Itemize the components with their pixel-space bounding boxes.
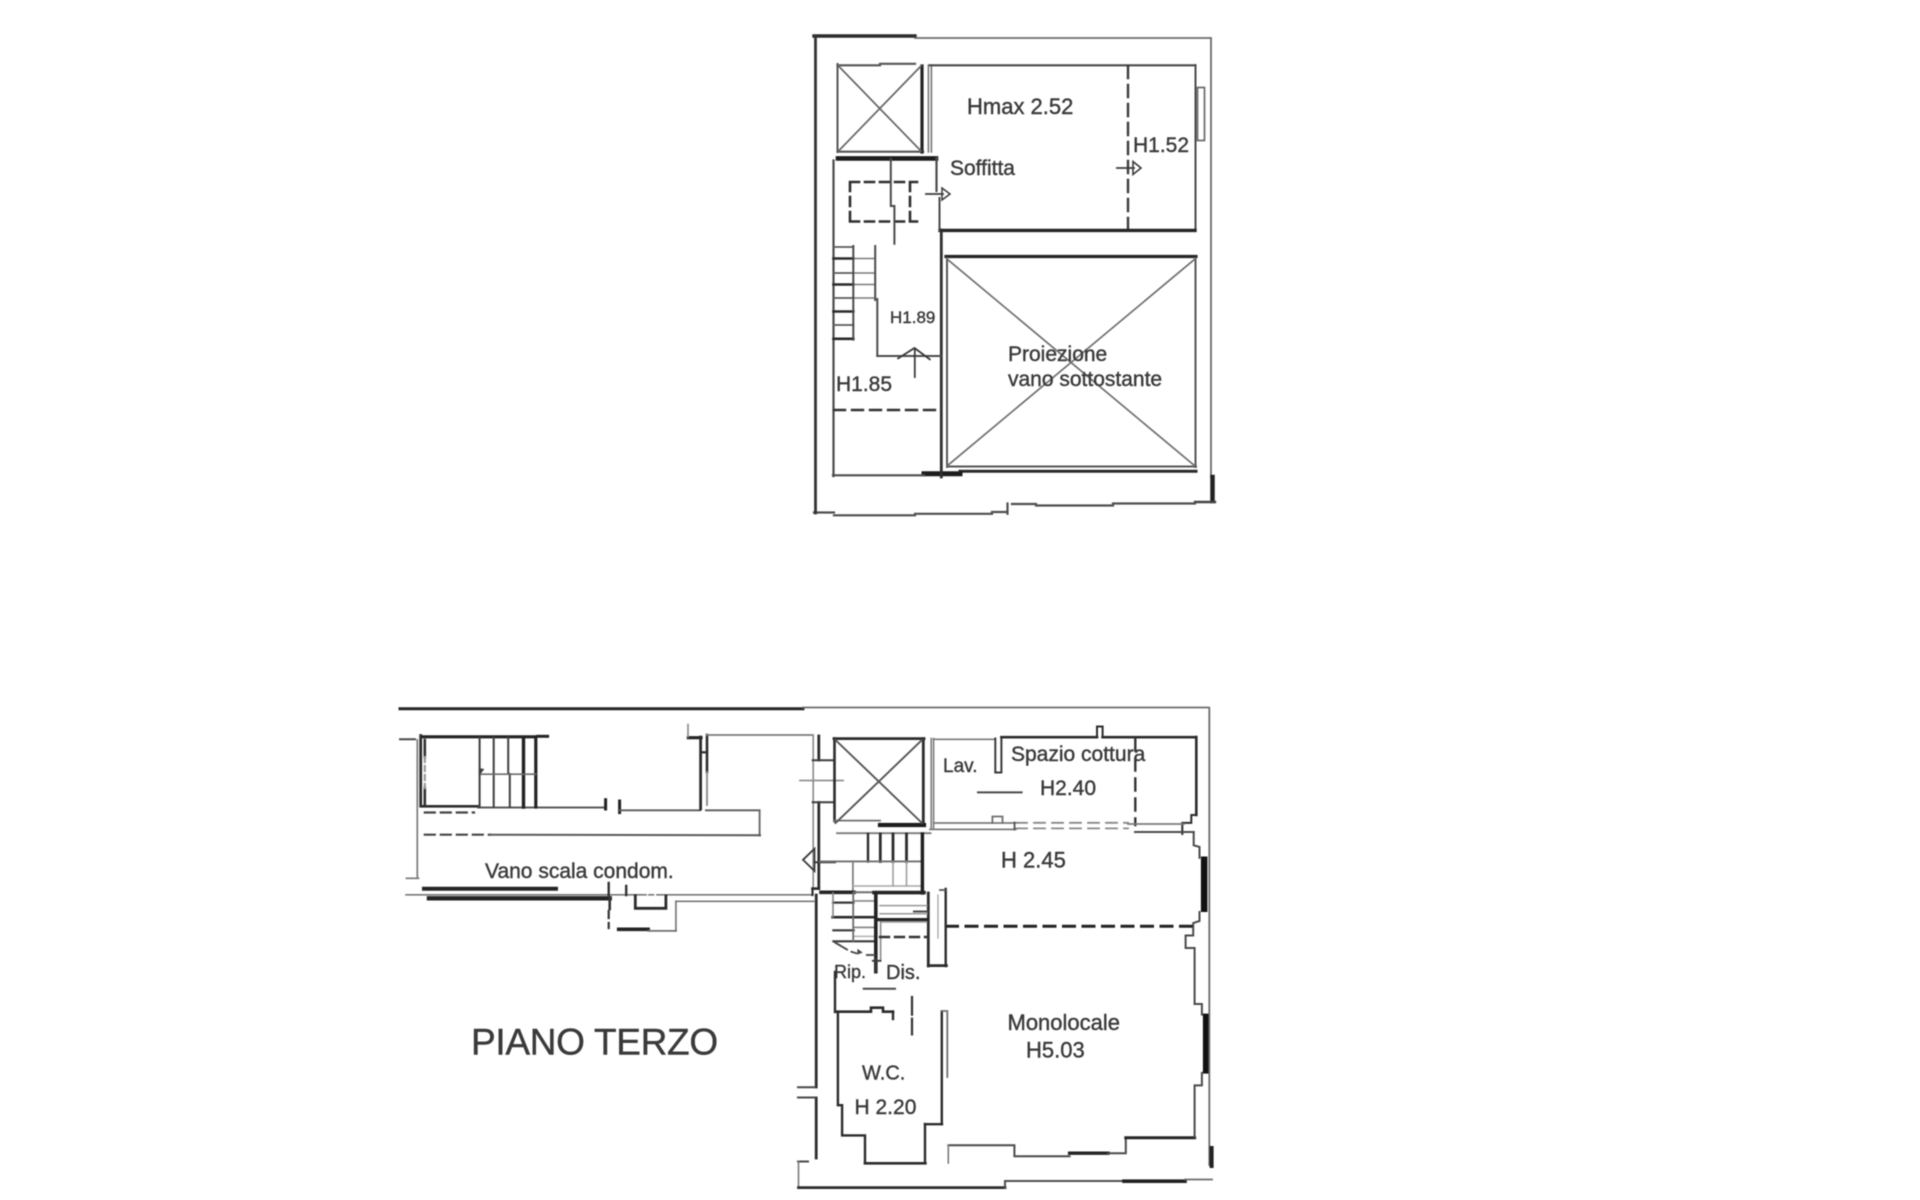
svg-text:Vano scala condom.: Vano scala condom. — [485, 860, 674, 883]
svg-text:PIANO TERZO: PIANO TERZO — [471, 1022, 718, 1063]
svg-text:Rip.: Rip. — [834, 962, 866, 982]
svg-text:H 2.45: H 2.45 — [1001, 848, 1066, 873]
svg-text:H1.89: H1.89 — [890, 308, 935, 327]
svg-text:W.C.: W.C. — [862, 1063, 905, 1085]
svg-text:Monolocale: Monolocale — [1008, 1010, 1121, 1035]
svg-text:H5.03: H5.03 — [1026, 1038, 1085, 1063]
svg-text:H1.52: H1.52 — [1133, 134, 1189, 157]
svg-text:Proiezione: Proiezione — [1008, 343, 1107, 366]
svg-text:H 2.20: H 2.20 — [855, 1096, 917, 1119]
svg-text:H2.40: H2.40 — [1040, 777, 1096, 800]
svg-text:Dis.: Dis. — [886, 962, 920, 984]
svg-text:H1.85: H1.85 — [836, 373, 892, 396]
svg-text:Lav.: Lav. — [943, 756, 978, 777]
svg-text:Spazio cottura: Spazio cottura — [1011, 743, 1146, 766]
svg-text:Soffitta: Soffitta — [950, 157, 1015, 180]
svg-text:vano sottostante: vano sottostante — [1008, 368, 1162, 391]
svg-text:Hmax 2.52: Hmax 2.52 — [967, 94, 1073, 119]
